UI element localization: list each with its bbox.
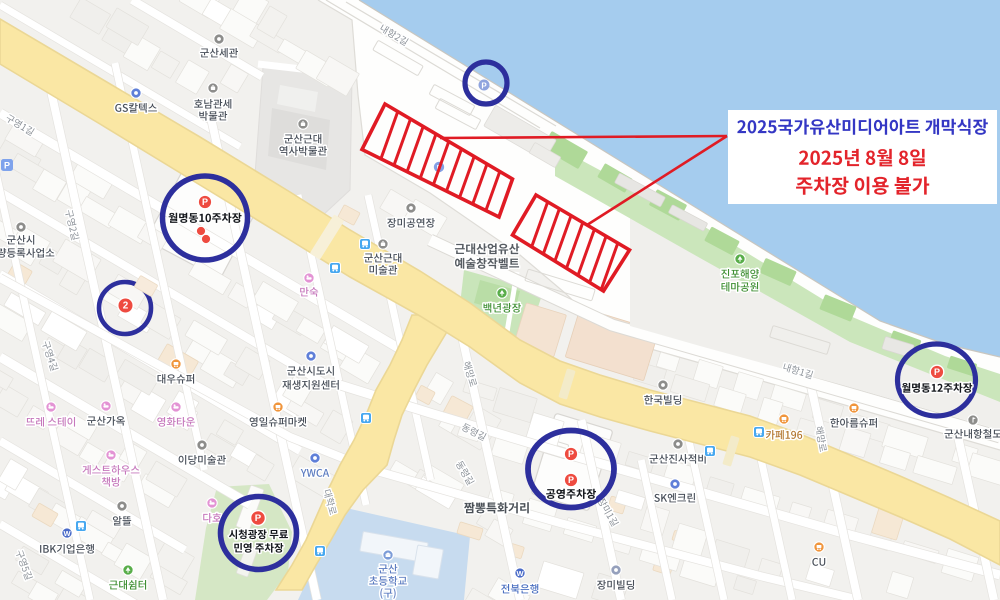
svg-text:P: P	[568, 449, 574, 459]
svg-text:P: P	[934, 367, 940, 377]
svg-text:P: P	[255, 513, 262, 524]
svg-text:P: P	[202, 197, 208, 207]
svg-text:2: 2	[123, 301, 129, 312]
svg-text:P: P	[481, 82, 487, 91]
svg-text:P: P	[4, 161, 10, 171]
svg-text:P: P	[568, 475, 574, 485]
svg-text:W: W	[516, 569, 524, 578]
svg-text:W: W	[63, 529, 71, 538]
